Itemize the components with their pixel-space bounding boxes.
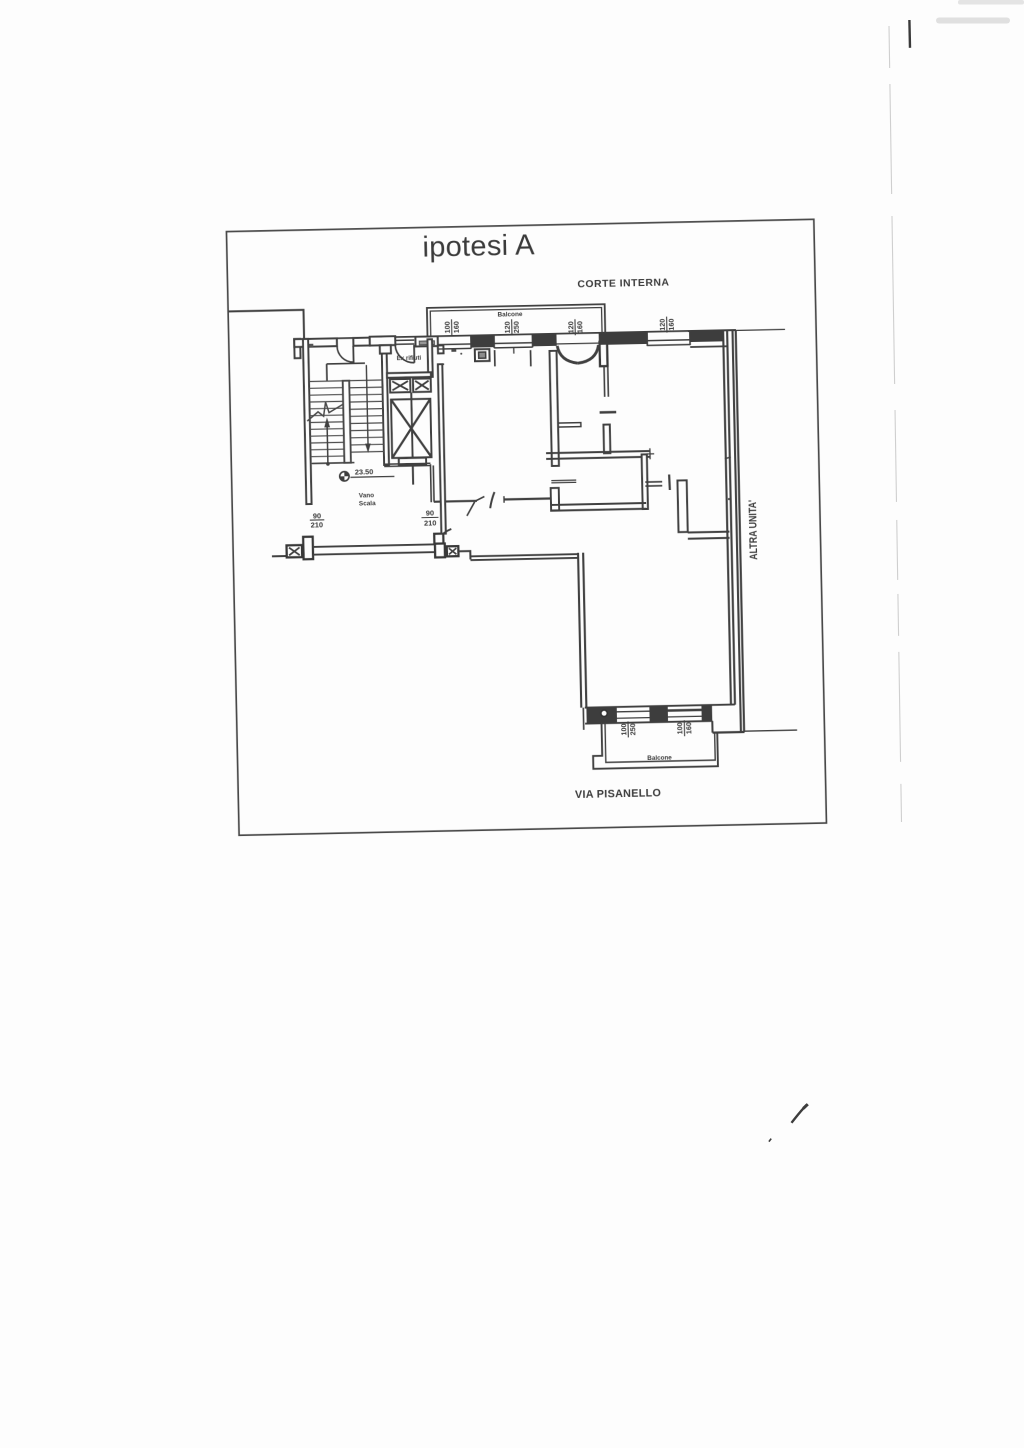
svg-text:100: 100 <box>675 722 684 734</box>
svg-text:CORTE INTERNA: CORTE INTERNA <box>577 277 669 290</box>
svg-text:Balcone: Balcone <box>498 311 523 319</box>
svg-text:23.50: 23.50 <box>355 467 374 476</box>
svg-text:Ex rifiuti: Ex rifiuti <box>397 355 422 363</box>
svg-text:210: 210 <box>311 520 324 529</box>
svg-text:160: 160 <box>452 321 461 333</box>
svg-text:VIA PISANELLO: VIA PISANELLO <box>575 787 662 801</box>
svg-text:250: 250 <box>628 723 637 735</box>
svg-text:Vano: Vano <box>359 492 375 499</box>
svg-text:120: 120 <box>658 319 667 331</box>
svg-text:160: 160 <box>684 722 693 734</box>
svg-text:210: 210 <box>424 518 437 527</box>
svg-text:90: 90 <box>426 509 434 518</box>
svg-text:120: 120 <box>566 321 575 333</box>
svg-text:ALTRA UNITA': ALTRA UNITA' <box>747 499 760 559</box>
svg-text:100: 100 <box>619 723 628 735</box>
svg-text:Scala: Scala <box>359 500 376 507</box>
svg-text:160: 160 <box>575 321 584 333</box>
svg-text:ipotesi A: ipotesi A <box>422 229 535 263</box>
svg-text:160: 160 <box>667 318 676 330</box>
svg-text:120: 120 <box>503 321 512 333</box>
svg-text:Balcone: Balcone <box>647 754 672 762</box>
svg-text:100: 100 <box>443 321 452 333</box>
svg-text:90: 90 <box>313 511 321 520</box>
svg-text:250: 250 <box>512 321 521 333</box>
